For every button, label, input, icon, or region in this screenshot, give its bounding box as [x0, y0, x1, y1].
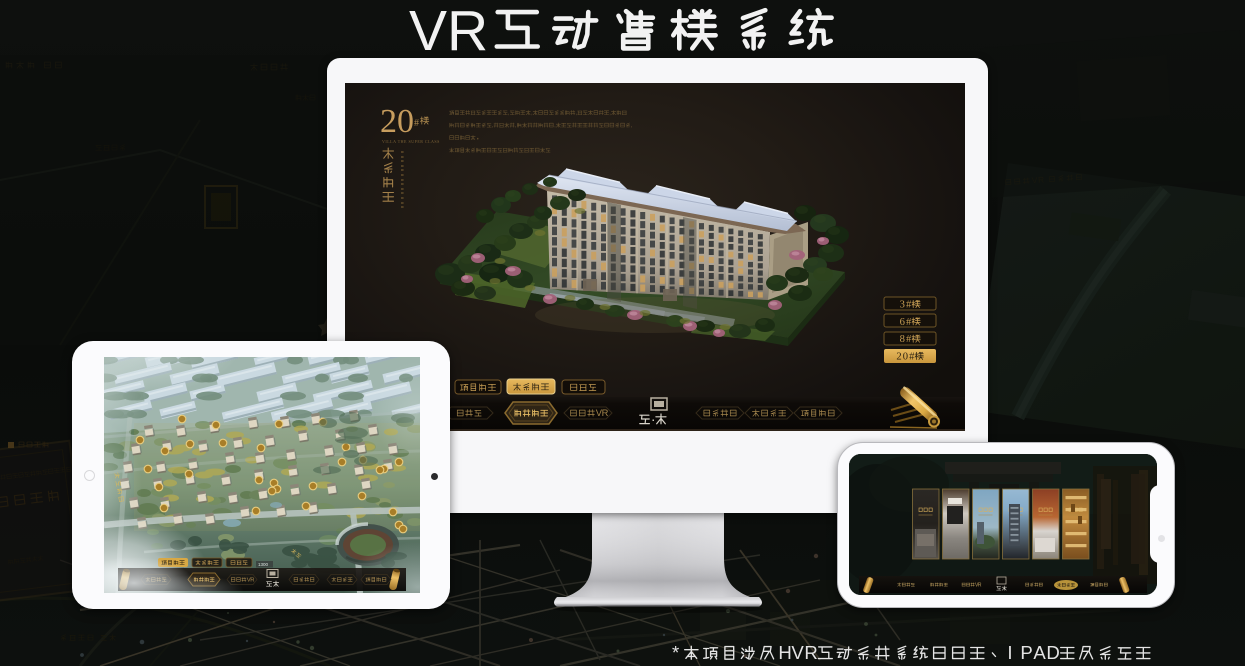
svg-text:,: , — [609, 110, 611, 117]
svg-text:1300: 1300 — [258, 562, 269, 567]
svg-text:20: 20 — [380, 103, 414, 140]
svg-text:R: R — [1038, 174, 1045, 184]
svg-text:6: 6 — [900, 317, 905, 328]
svg-text:3: 3 — [900, 300, 905, 311]
svg-text:#: # — [906, 334, 912, 345]
svg-text:8: 8 — [900, 334, 905, 345]
svg-text:R: R — [602, 407, 609, 418]
svg-text:#: # — [414, 118, 419, 129]
svg-text:0: 0 — [903, 352, 908, 363]
svg-text:·: · — [651, 412, 656, 428]
svg-text:#: # — [909, 352, 915, 363]
svg-text:,: , — [508, 110, 510, 117]
svg-text:#: # — [906, 300, 912, 311]
svg-text:,: , — [515, 122, 517, 129]
svg-text:,: , — [531, 110, 533, 117]
svg-text:,: , — [554, 122, 556, 129]
svg-text:2: 2 — [896, 352, 901, 363]
svg-text:VILLA THE SUPER CLASS: VILLA THE SUPER CLASS — [382, 139, 440, 144]
svg-text:,: , — [576, 110, 578, 117]
svg-text:#: # — [906, 317, 912, 328]
svg-text:R: R — [250, 578, 254, 584]
svg-text:,: , — [492, 122, 494, 129]
svg-text:,: , — [631, 122, 633, 129]
svg-text:R: R — [978, 582, 982, 588]
